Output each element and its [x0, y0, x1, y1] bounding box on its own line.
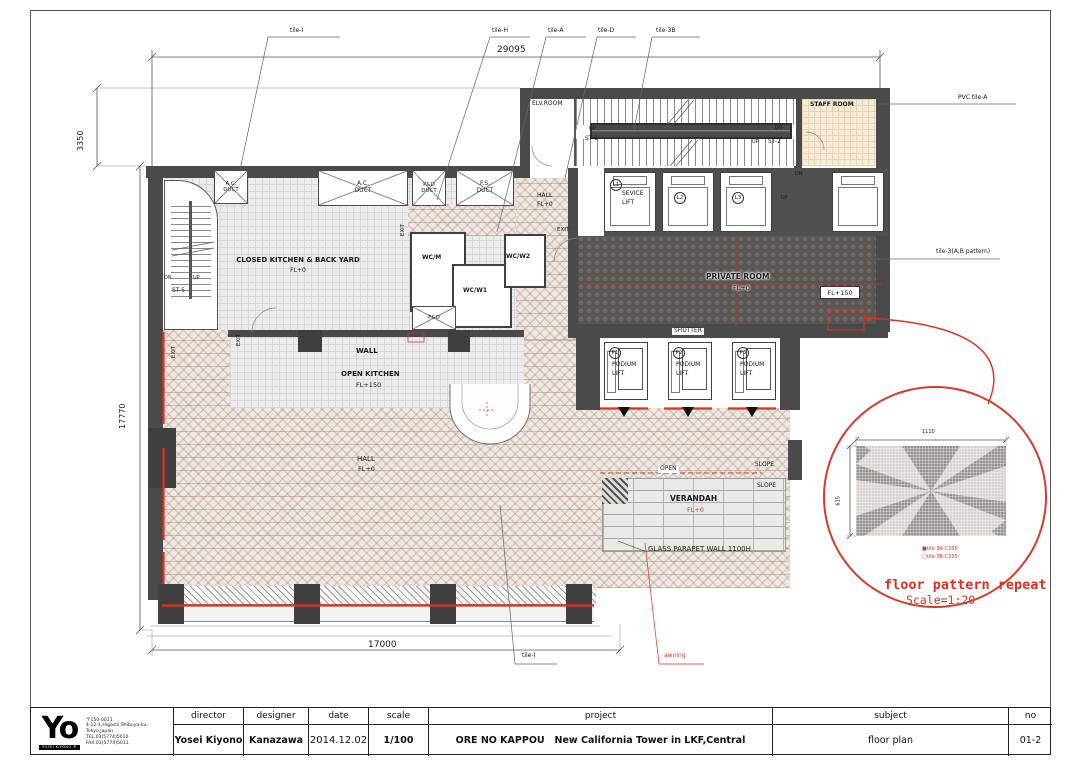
ac-duct-box: A.C. DUCT [318, 170, 408, 206]
detail-legend: ■tile-3A C335 [922, 547, 958, 553]
podium-tag-p1: P1 [609, 347, 621, 359]
finish-tag: tile-3B [656, 28, 675, 35]
lift-l2 [662, 172, 714, 232]
detail-dim-width: 1110 [922, 430, 935, 436]
facade-column [566, 584, 592, 624]
exit-label: EXIT [400, 224, 406, 236]
duct-label: DUCT [421, 188, 436, 194]
header-project: project [428, 708, 772, 725]
pd-duct-box: P&D DUCT [412, 170, 446, 206]
stair-st2: ST-2 [768, 139, 781, 146]
window-band [158, 604, 594, 622]
duct-label: DUCT [223, 187, 238, 193]
wc-w1-room [452, 264, 512, 328]
wall-segment [228, 330, 524, 337]
room-label-closed-kitchen: CLOSED KITCHEN & BACK YARD [232, 257, 364, 265]
wall-segment [576, 324, 888, 338]
slope-label: SLOPE [757, 483, 776, 490]
finish-tag: tile-A [548, 28, 564, 35]
podium-label: LIFT [612, 371, 624, 378]
stair-dn: DN [775, 126, 783, 132]
dim-left-upper: 3350 [77, 131, 86, 151]
lift-tag-l2: L2 [674, 192, 686, 204]
lift-label: LIFT [622, 200, 634, 207]
fo-label: F&O [428, 315, 440, 321]
room-label-wcw1: WC/W1 [463, 288, 487, 295]
wall-pier [448, 330, 470, 352]
header-subject: subject [772, 708, 1008, 725]
detail-dim-height: 615 [836, 496, 842, 506]
value-project: ORE NO KAPPOU New California Tower in LK… [428, 725, 772, 756]
facade-column [158, 584, 184, 624]
value-scale: 1/100 [368, 725, 428, 756]
staff-room-floor [802, 99, 876, 166]
finish-tag: tile-I [522, 653, 535, 660]
wc-w2-room [504, 234, 546, 288]
verandah-step [602, 478, 628, 504]
facade-column [430, 584, 456, 624]
wall-segment [520, 99, 530, 168]
wall-segment [788, 440, 802, 480]
room-label-verandah: VERANDAH [670, 495, 717, 503]
level-tag: FL+0 [358, 466, 375, 473]
stair-rail [189, 201, 192, 299]
lift-tag-l1: L1 [610, 179, 622, 191]
facade-column [294, 584, 320, 624]
logo-text: Yo [42, 714, 78, 744]
address-line: FAX.03(5774)5011 [86, 741, 148, 747]
podium-label: LIFT [676, 371, 688, 378]
lift-label: SEVICE [622, 191, 643, 198]
open-label: OPEN [658, 466, 679, 473]
room-label-staff: STAFF ROOM [810, 102, 854, 109]
level-tag: FL+150 [356, 382, 381, 389]
duct-label: DUCT [477, 188, 494, 195]
parapet-label: GLASS PARAPET WALL 1100H [648, 546, 751, 554]
company-logo: Yo YOSEI KIYONO ® [39, 714, 80, 751]
awning-band [158, 586, 596, 604]
stair-dn: DN [795, 172, 803, 178]
header-director: director [173, 708, 243, 725]
wall-label: WALL [356, 348, 378, 356]
lift-tag-l3: L3 [732, 192, 744, 204]
drawing-sheet: A.C. DUCT A.C. DUCT P&D DUCT F.S. DUCT F… [0, 0, 1080, 764]
fs-duct-box: F.S. DUCT [456, 170, 514, 206]
level-tag: FL+0 [733, 285, 750, 292]
room-label-open-kitchen: OPEN KITCHEN [341, 371, 400, 379]
ac-duct-box: A.C. DUCT [214, 170, 248, 204]
exit-label: EXIT [236, 334, 242, 346]
exit-label: EXIT [171, 346, 177, 358]
stair-up: UP [193, 276, 200, 282]
lift-lobby-corridor [578, 168, 604, 236]
fo-box: F&O [412, 306, 456, 330]
floor-pattern-swatch [856, 446, 1006, 536]
logo-cell: Yo YOSEI KIYONO ® 〒150-0011 4-12-1,Higas… [31, 708, 173, 756]
lift-l4 [832, 172, 884, 232]
detail-caption-scale: Scale=1:20 [906, 594, 975, 607]
wall-segment [148, 486, 163, 600]
stair-st5 [164, 180, 218, 330]
value-date: 2014.12.02 [308, 725, 368, 756]
finish-tag: tile-I [290, 28, 303, 35]
room-label-private: PRIVATE ROOM [706, 273, 769, 281]
level-tag: FL+0 [232, 268, 364, 275]
dim-top: 29095 [497, 45, 526, 55]
dim-bottom: 17000 [368, 640, 397, 650]
header-scale: scale [368, 708, 428, 725]
stair-st1: ST-1 [585, 136, 598, 143]
stair-treads [576, 139, 796, 166]
stair-up: UP [752, 140, 759, 146]
wall-segment [780, 338, 800, 410]
wall-segment [576, 338, 600, 410]
podium-label: PODIUM [612, 362, 636, 369]
wall-segment [568, 168, 578, 338]
elevator-room [530, 99, 576, 166]
stair-up: UP [589, 127, 596, 133]
room-label-hall: HALL [537, 193, 552, 200]
wall-pier [298, 330, 322, 352]
stair-st5: ST-5 [172, 288, 185, 295]
detail-legend: □tile-3B C335 [922, 555, 958, 561]
value-no: 01-2 [1008, 725, 1052, 756]
finish-tag: tile-3(A,B pattern) [936, 249, 990, 256]
fl150-tag: FL+150 [820, 286, 860, 299]
level-tag-red: FL+0 [687, 507, 704, 514]
finish-tag: tile-H [492, 28, 508, 35]
value-director: Yosei Kiyono [173, 725, 243, 756]
slope-label: SLOPE [755, 462, 774, 469]
stair-up: UP [781, 196, 788, 202]
header-designer: designer [243, 708, 308, 725]
podium-label: PODIUM [676, 362, 700, 369]
exit-label: EXIT [557, 227, 569, 233]
company-address: 〒150-0011 4-12-1,Higashi,Shibuya-ku, Tok… [86, 718, 148, 747]
header-no: no [1008, 708, 1052, 725]
stair-handrail [590, 123, 792, 139]
finish-tag: tile-D [598, 28, 614, 35]
logo-caption: YOSEI KIYONO ® [39, 745, 80, 751]
podium-tag-p3: P3 [737, 347, 749, 359]
room-label-wcw2: WC/W2 [506, 254, 530, 261]
header-date: date [308, 708, 368, 725]
podium-tag-p2: P2 [673, 347, 685, 359]
shutter-label: SHUTTER [672, 328, 704, 335]
detail-caption: floor pattern repeat [884, 578, 1047, 593]
room-label-hall: HALL [357, 456, 375, 464]
awning-tag: awning [664, 653, 686, 660]
level-tag: FL+0 [537, 202, 553, 209]
column [148, 428, 176, 488]
value-subject: floor plan [772, 725, 1008, 756]
room-label-wcm: WC/M [422, 255, 441, 262]
dim-left: 17770 [119, 404, 128, 429]
podium-label: LIFT [740, 371, 752, 378]
stair-treads [576, 99, 796, 125]
wall-segment [148, 178, 163, 430]
room-label-elv: ELV.ROOM [532, 101, 563, 108]
duct-label: DUCT [355, 188, 372, 195]
wall-segment [520, 88, 890, 99]
finish-tag: PVC tile-A [958, 95, 987, 102]
podium-label: PODIUM [740, 362, 764, 369]
stair-dn: DN [164, 276, 172, 282]
stair-st1-st2 [576, 99, 796, 166]
title-block: Yo YOSEI KIYONO ® 〒150-0011 4-12-1,Higas… [30, 707, 1051, 755]
pinwheel-pattern [856, 446, 1006, 536]
lift-l3 [720, 172, 772, 232]
value-designer: Kanazawa [243, 725, 308, 756]
